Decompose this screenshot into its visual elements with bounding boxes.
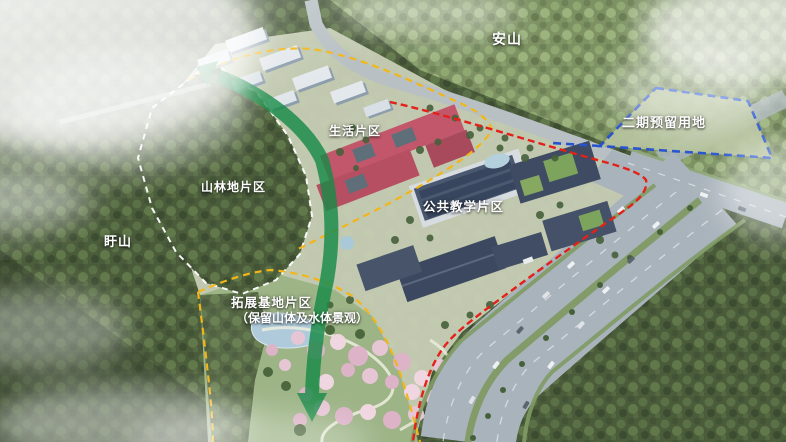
- site-plan-rendering: 安山 盱山 二期预留用地 生活片区 山林地片区 公共教学片区 拓展基地片区 （保…: [0, 0, 786, 442]
- aerial-rendering-canvas: [0, 0, 786, 442]
